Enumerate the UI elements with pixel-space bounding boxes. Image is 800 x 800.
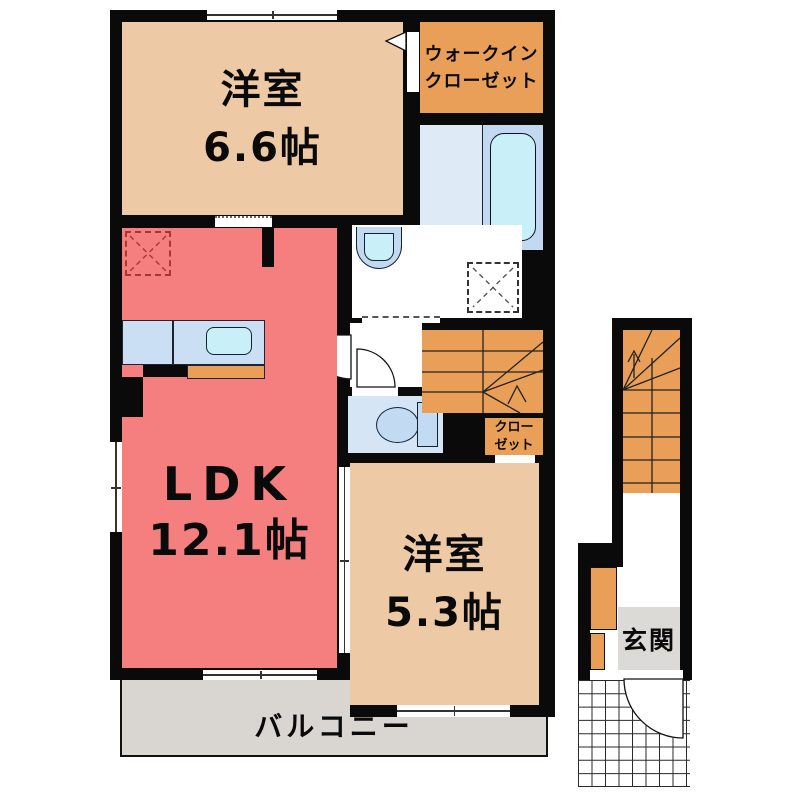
washing-machine-space bbox=[467, 262, 519, 313]
front-door-swing bbox=[619, 678, 686, 740]
sliding-door bbox=[339, 467, 350, 653]
entrance-hall: 玄関 bbox=[618, 607, 680, 670]
walk-in-closet: ウォークイン クローゼット bbox=[420, 22, 543, 113]
window-ldk-balcony bbox=[203, 670, 317, 680]
stairs-upper-steps bbox=[422, 330, 543, 413]
room-size: 5.3帖 bbox=[385, 584, 504, 642]
shoe-cabinet-large bbox=[590, 567, 617, 630]
window-western2-balcony bbox=[397, 705, 510, 717]
room-western-6_6: 洋室 6.6帖 bbox=[122, 22, 403, 215]
shoe-cabinet-small bbox=[590, 633, 605, 670]
toilet-bowl bbox=[376, 407, 419, 443]
kitchen-sink bbox=[206, 327, 252, 355]
ldk-label: LDK 12.1帖 bbox=[122, 438, 337, 588]
refrigerator-space bbox=[125, 231, 171, 276]
closet: クロー ゼット bbox=[485, 418, 543, 455]
kitchen-wall-1 bbox=[143, 365, 187, 377]
washbasin-sink bbox=[364, 233, 394, 261]
wall-stub bbox=[262, 228, 274, 267]
floor-plan: バルコニー 洋室 6.6帖 ウォークイン クローゼット クロー ゼット bbox=[0, 0, 800, 800]
washing-machine-cross-icon bbox=[469, 264, 517, 311]
room-name: 洋室 bbox=[403, 526, 487, 584]
room-western-5_3: 洋室 5.3帖 bbox=[350, 463, 539, 705]
refrigerator-cross-icon bbox=[127, 233, 169, 274]
counter-divider bbox=[172, 321, 174, 364]
window-north bbox=[207, 10, 337, 20]
kitchen-wall-2 bbox=[122, 377, 143, 417]
toilet-door-swing bbox=[355, 347, 399, 389]
room-name: 洋室 bbox=[221, 61, 305, 119]
stair-hall-floor bbox=[623, 493, 680, 607]
room-size: 6.6帖 bbox=[203, 119, 322, 177]
washroom-opening bbox=[362, 316, 440, 323]
window-ldk-west bbox=[110, 442, 122, 532]
western1-ldk-opening bbox=[215, 216, 272, 227]
stairs-lower-steps bbox=[623, 330, 680, 493]
wic-doorway bbox=[407, 32, 419, 92]
wic-door-icon bbox=[385, 31, 407, 52]
kitchen-edge bbox=[187, 365, 265, 379]
